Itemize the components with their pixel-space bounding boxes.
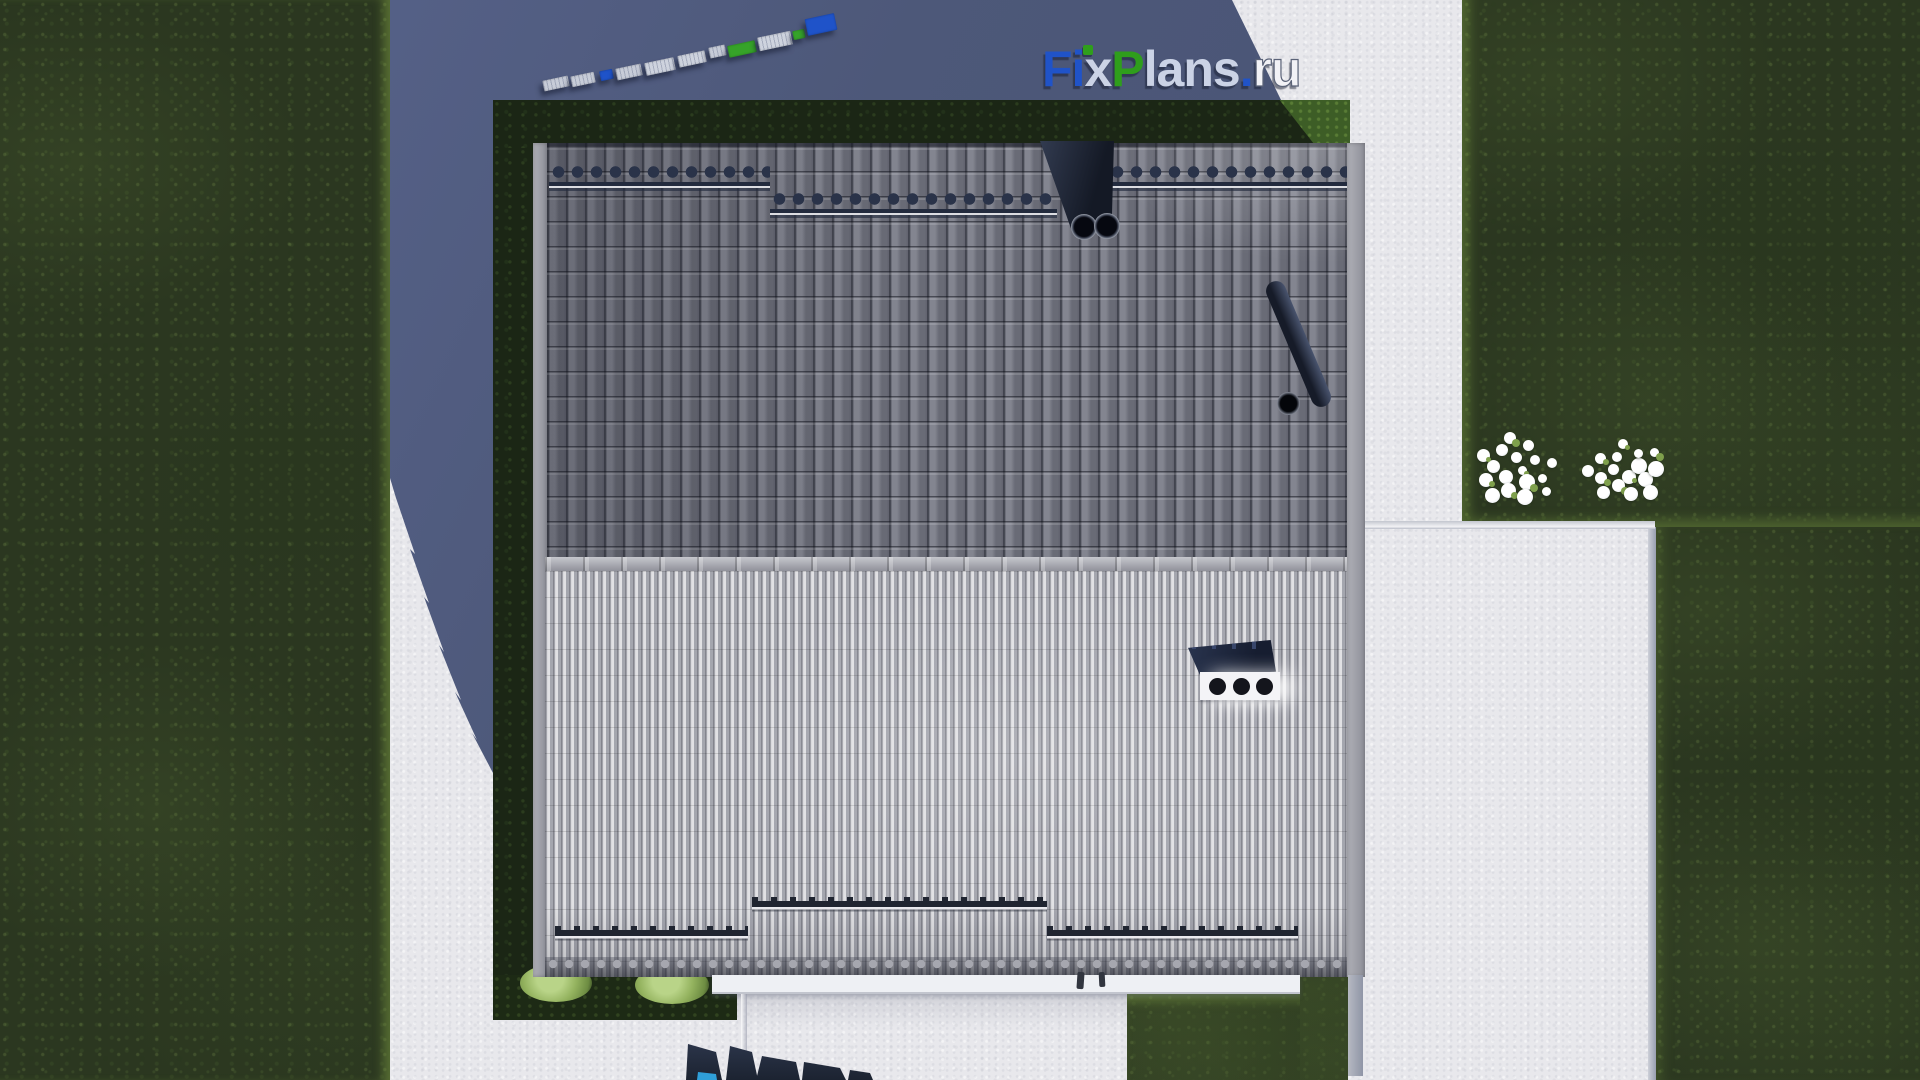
snow-guard-scallop-row bbox=[1108, 164, 1347, 191]
chimney-flue bbox=[1094, 213, 1120, 239]
flower-leaf-fleck bbox=[1489, 481, 1495, 487]
vent-hole bbox=[1209, 678, 1226, 695]
downspout-mark bbox=[1076, 972, 1084, 989]
flower bbox=[1496, 444, 1508, 456]
flower bbox=[1634, 449, 1643, 458]
vent-hole bbox=[1256, 678, 1273, 695]
roof-eave-fringe bbox=[545, 957, 1347, 977]
flower-leaf-fleck bbox=[1632, 478, 1637, 483]
snow-guard-rail bbox=[752, 901, 1047, 914]
pavement-edge bbox=[1365, 521, 1655, 529]
flower bbox=[1517, 489, 1533, 505]
roof-lower-shading bbox=[545, 571, 1347, 977]
ledge-shadow bbox=[737, 994, 1127, 1028]
vent-hole bbox=[1233, 678, 1250, 695]
downspout-mark bbox=[1099, 972, 1106, 987]
eave-ledge bbox=[712, 975, 1300, 994]
flower bbox=[1499, 470, 1513, 484]
hedge-top bbox=[493, 100, 1350, 148]
snow-guard-rail bbox=[1047, 930, 1298, 943]
grass-right-bottom bbox=[1655, 527, 1920, 1080]
flower bbox=[1612, 452, 1622, 462]
grass-sliver bbox=[1300, 975, 1348, 1080]
logo-letters-ru: ru bbox=[1253, 40, 1301, 98]
roof-vent-pipe-opening bbox=[1277, 392, 1300, 415]
flower bbox=[1511, 452, 1522, 463]
snow-guard-rail bbox=[555, 930, 748, 943]
grass-left bbox=[0, 0, 390, 1080]
snow-guard-scallop-row bbox=[770, 191, 1057, 218]
flower-leaf-fleck bbox=[1656, 453, 1664, 461]
logo-i-dot-green bbox=[1083, 45, 1093, 55]
flower-leaf-fleck bbox=[1603, 459, 1609, 465]
flower bbox=[1643, 485, 1658, 500]
fixplans-logo: FixPlans.ru bbox=[1042, 40, 1301, 98]
roof-ridge bbox=[545, 557, 1347, 571]
pavement-edge bbox=[1648, 527, 1656, 1080]
flower bbox=[1530, 455, 1540, 465]
roof-gutter-right bbox=[1347, 143, 1365, 977]
flower bbox=[1582, 465, 1594, 477]
pavement-edge bbox=[1348, 975, 1363, 1076]
flower bbox=[1648, 461, 1664, 477]
render-canvas: FixPlans.ru bbox=[0, 0, 1920, 1080]
hedge-left bbox=[493, 148, 533, 1018]
flower bbox=[1608, 464, 1619, 475]
ornamental-plant bbox=[680, 1038, 880, 1080]
flower-leaf-fleck bbox=[1530, 484, 1538, 492]
snow-guard-scallop-row bbox=[549, 164, 770, 191]
logo-letter-f: F bbox=[1042, 40, 1072, 98]
logo-letter-p: P bbox=[1111, 40, 1143, 98]
logo-dot: . bbox=[1240, 40, 1253, 98]
logo-letters-lans: lans bbox=[1144, 40, 1240, 98]
